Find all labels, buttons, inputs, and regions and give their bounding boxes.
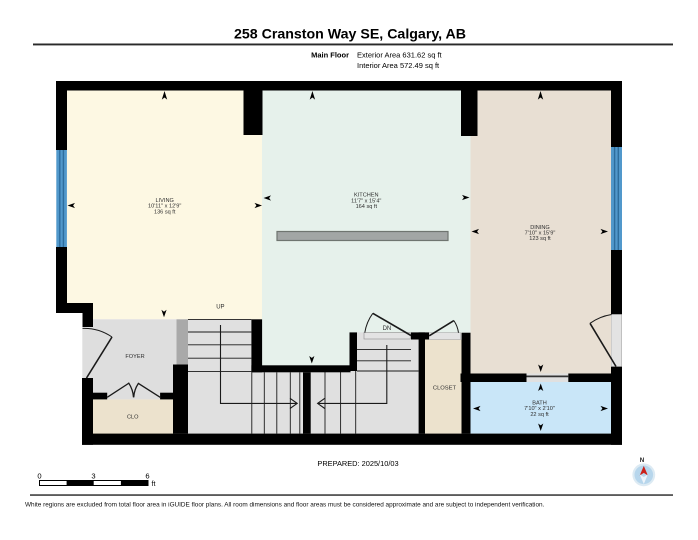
- svg-text:Interior Area 572.49 sq ft: Interior Area 572.49 sq ft: [357, 61, 440, 70]
- svg-text:3: 3: [91, 471, 95, 480]
- svg-text:Exterior Area 631.62 sq ft: Exterior Area 631.62 sq ft: [357, 51, 443, 60]
- svg-text:ft: ft: [152, 481, 156, 488]
- svg-text:UP: UP: [216, 305, 224, 311]
- svg-text:White regions are excluded fro: White regions are excluded from total fl…: [25, 502, 545, 509]
- svg-text:258 Cranston Way SE, Calgary,: 258 Cranston Way SE, Calgary, AB: [234, 26, 466, 42]
- svg-text:123 sq ft: 123 sq ft: [529, 236, 551, 242]
- svg-text:0: 0: [37, 471, 41, 480]
- svg-text:DN: DN: [383, 326, 392, 332]
- svg-text:136 sq ft: 136 sq ft: [154, 209, 176, 215]
- svg-text:164 sq ft: 164 sq ft: [356, 204, 378, 210]
- svg-text:FOYER: FOYER: [125, 354, 144, 360]
- svg-text:CLO: CLO: [127, 415, 139, 421]
- svg-text:22 sq ft: 22 sq ft: [530, 412, 549, 418]
- svg-text:CLOSET: CLOSET: [433, 386, 457, 392]
- svg-text:Main Floor: Main Floor: [311, 51, 349, 60]
- svg-text:6: 6: [145, 471, 149, 480]
- svg-text:N: N: [640, 457, 645, 464]
- svg-text:PREPARED: 2025/10/03: PREPARED: 2025/10/03: [317, 459, 398, 468]
